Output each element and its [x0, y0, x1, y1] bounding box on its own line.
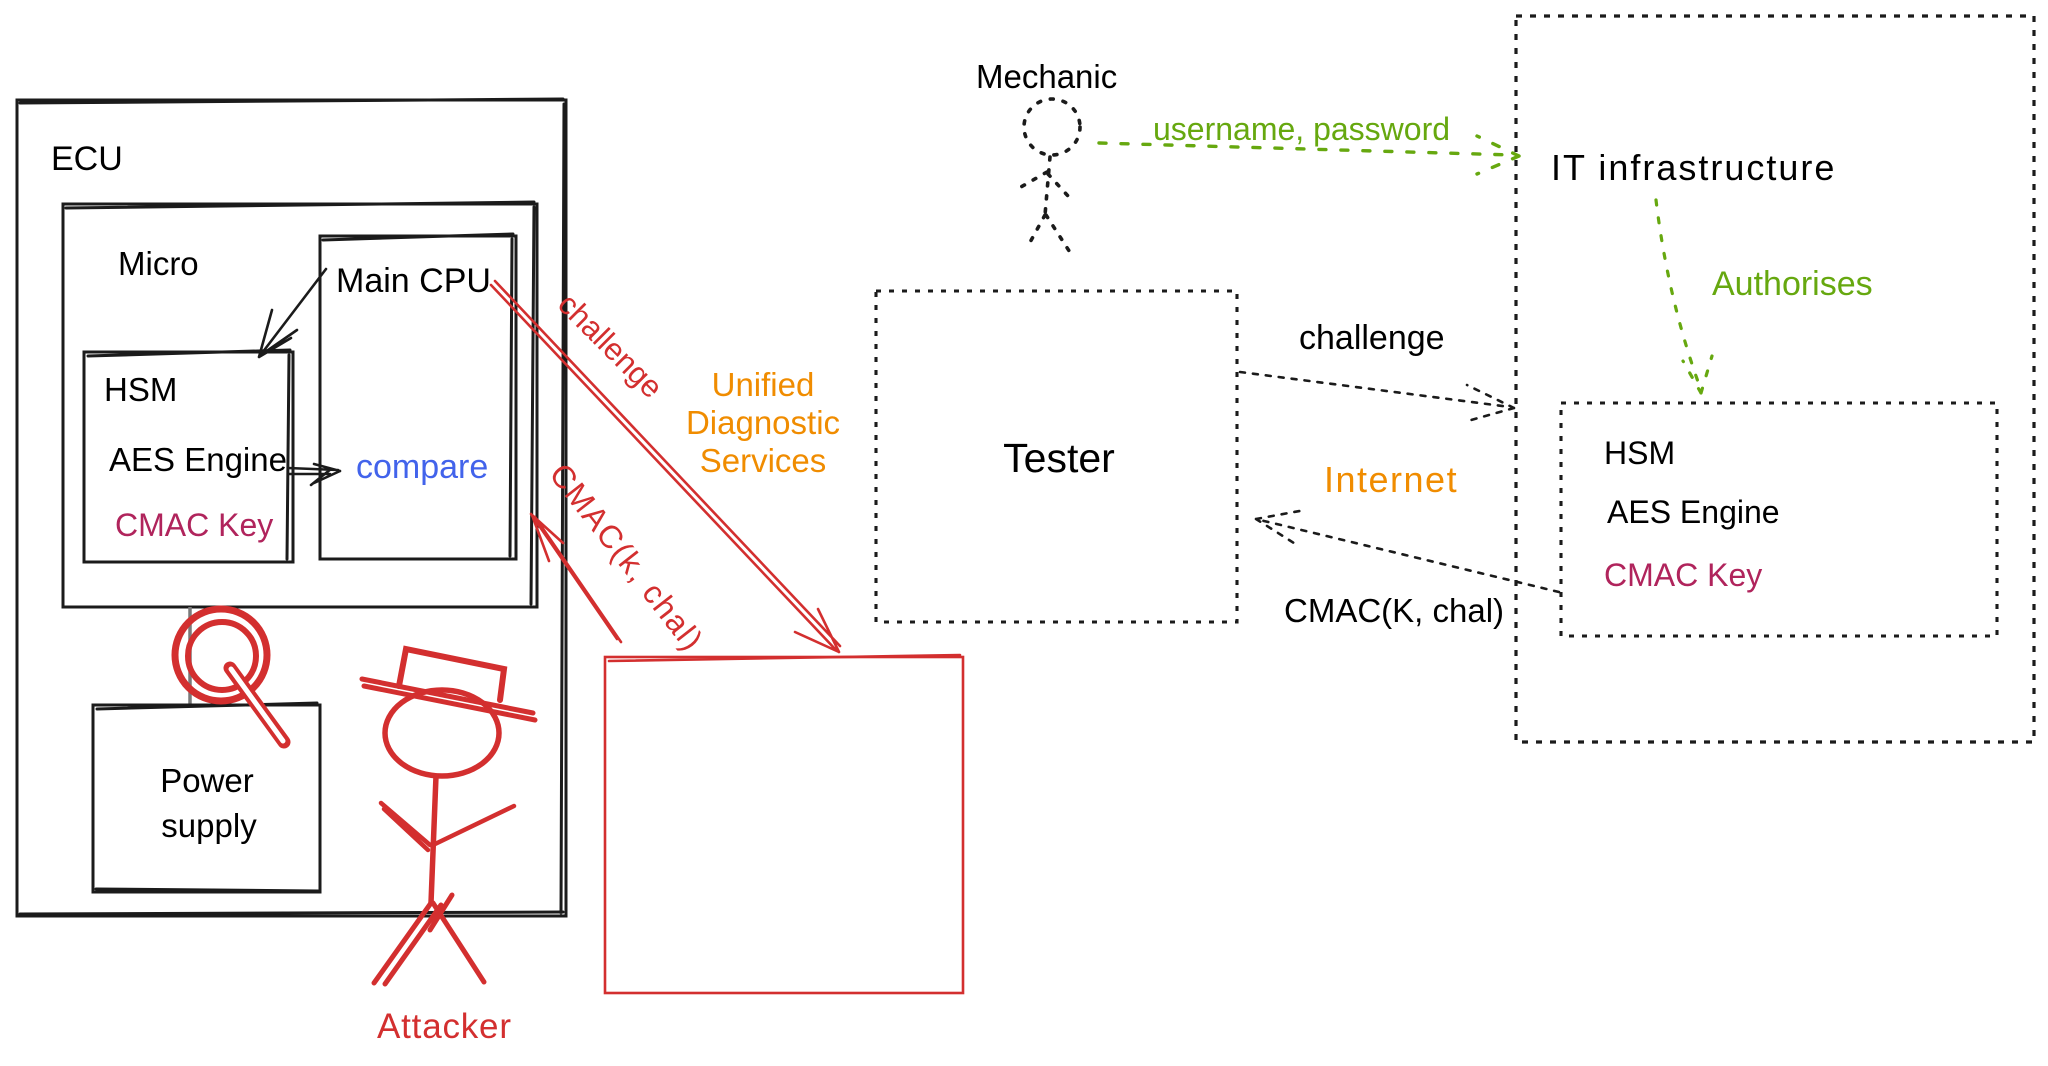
svg-text:Tester: Tester — [1003, 435, 1115, 481]
svg-text:CMAC Key: CMAC Key — [1604, 557, 1762, 593]
svg-text:Services: Services — [700, 442, 827, 479]
svg-text:Main CPU: Main CPU — [336, 262, 491, 300]
svg-text:Internet: Internet — [1324, 459, 1458, 500]
svg-text:compare: compare — [356, 448, 488, 486]
svg-text:IT infrastructure: IT infrastructure — [1551, 147, 1836, 188]
svg-text:challenge: challenge — [551, 286, 670, 405]
svg-text:Attacker: Attacker — [377, 1007, 512, 1046]
svg-text:CMAC Key: CMAC Key — [115, 507, 273, 543]
svg-text:Mechanic: Mechanic — [976, 58, 1117, 95]
svg-text:HSM: HSM — [1604, 435, 1675, 471]
svg-text:Diagnostic: Diagnostic — [686, 404, 840, 441]
svg-text:challenge: challenge — [1299, 319, 1445, 357]
svg-text:Micro: Micro — [118, 245, 199, 282]
svg-text:Authorises: Authorises — [1712, 265, 1873, 303]
svg-text:CMAC(k, chal): CMAC(k, chal) — [543, 457, 711, 658]
svg-text:AES Engine: AES Engine — [109, 441, 287, 478]
svg-text:ECU: ECU — [51, 140, 123, 178]
svg-text:AES Engine: AES Engine — [1607, 494, 1780, 530]
svg-text:Unified: Unified — [712, 366, 815, 403]
svg-text:supply: supply — [161, 807, 257, 844]
svg-text:username, password: username, password — [1153, 111, 1450, 147]
svg-text:HSM: HSM — [104, 371, 177, 408]
svg-text:CMAC(K, chal): CMAC(K, chal) — [1284, 592, 1504, 629]
svg-text:Power: Power — [160, 762, 254, 799]
